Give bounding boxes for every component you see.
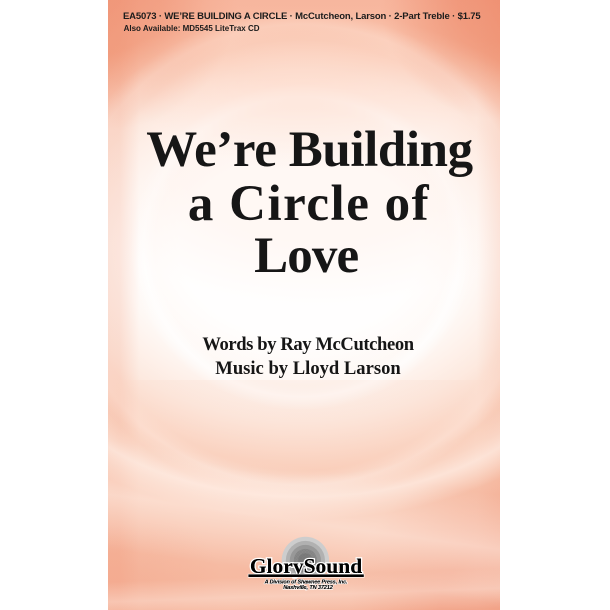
svg-text:Nashville, TN 37212: Nashville, TN 37212 <box>283 585 333 591</box>
